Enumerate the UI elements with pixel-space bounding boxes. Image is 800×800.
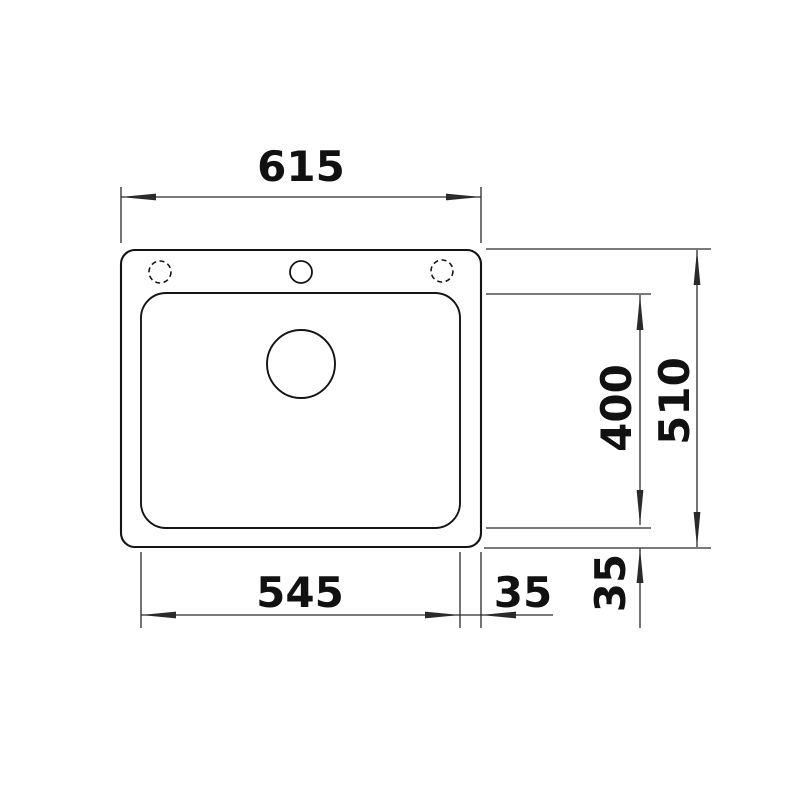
drawing-page: 615 545 35 400 — [0, 0, 800, 800]
dimension-overall-width: 615 — [121, 142, 481, 243]
arrow-up-icon — [637, 295, 644, 330]
dim-label-overall-depth: 510 — [650, 357, 699, 445]
tap-hole-center — [290, 261, 312, 283]
dim-label-basin-depth: 400 — [592, 364, 641, 452]
dim-label-bottom-edge-offset: 35 — [586, 554, 635, 612]
arrow-left-icon — [121, 194, 156, 201]
dimension-basin-depth: 400 — [486, 294, 651, 528]
tap-hole-right-optional — [431, 260, 453, 282]
arrow-up-icon — [694, 250, 701, 285]
dim-label-right-edge-offset: 35 — [494, 568, 552, 617]
arrow-up-icon — [637, 548, 644, 583]
sink-body — [121, 250, 481, 547]
dimension-bottom-offset: 35 — [586, 548, 643, 628]
sink-dimension-drawing: 615 545 35 400 — [0, 0, 800, 800]
drain-hole — [267, 330, 335, 398]
arrow-left-icon — [141, 612, 176, 619]
arrow-down-icon — [694, 512, 701, 547]
dim-label-overall-width: 615 — [257, 142, 345, 191]
arrow-right-icon — [446, 194, 481, 201]
arrow-down-icon — [637, 490, 644, 525]
tap-hole-left-optional — [149, 261, 171, 283]
sink-basin — [141, 293, 460, 528]
dim-label-basin-width: 545 — [256, 568, 344, 617]
dimension-basin-width: 545 35 — [141, 552, 553, 628]
arrow-right-icon — [425, 612, 460, 619]
